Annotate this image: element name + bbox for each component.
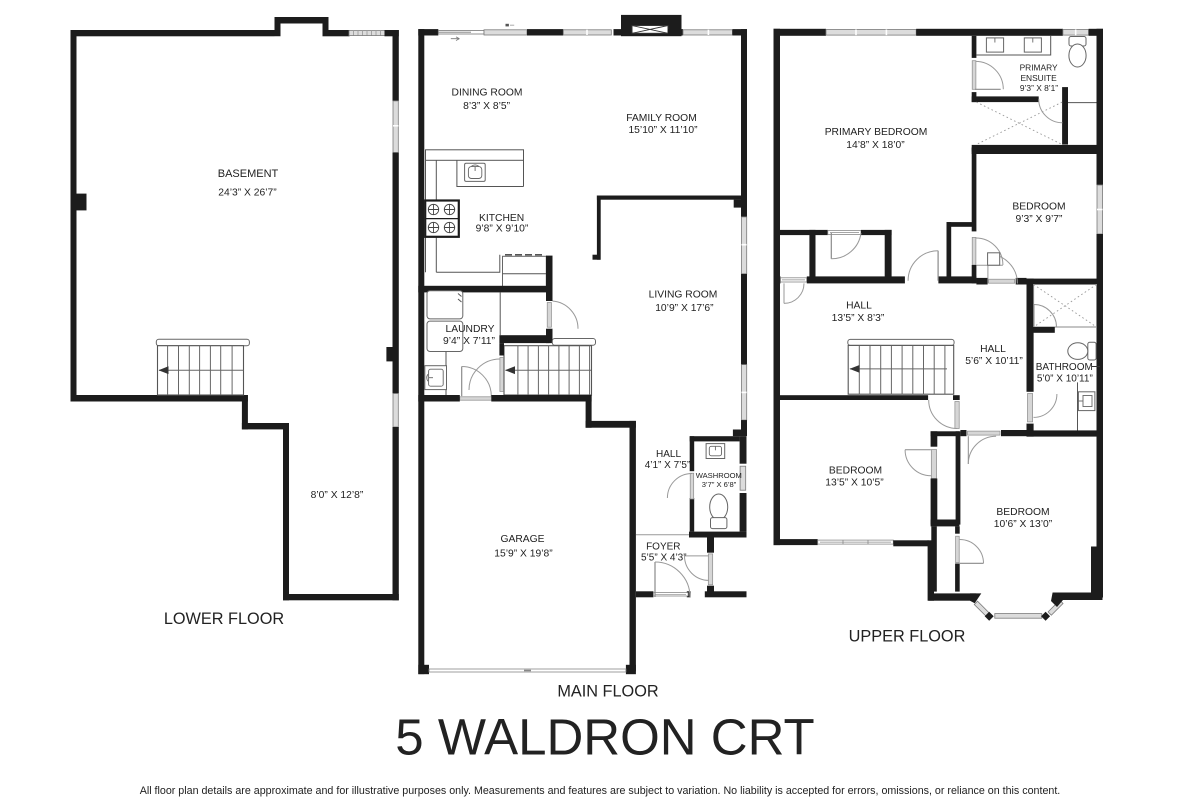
svg-text:5’0” X 10’11”: 5’0” X 10’11” — [1037, 373, 1093, 384]
svg-text:HALL: HALL — [656, 449, 681, 460]
svg-text:BEDROOM: BEDROOM — [1012, 202, 1065, 213]
svg-text:14’8” X 18’0”: 14’8” X 18’0” — [846, 140, 905, 151]
svg-text:10’9” X 17’6”: 10’9” X 17’6” — [655, 303, 714, 314]
svg-text:10’6” X 13’0”: 10’6” X 13’0” — [994, 519, 1053, 530]
svg-text:DINING ROOM: DINING ROOM — [452, 88, 523, 99]
svg-text:8’0” X 12’8”: 8’0” X 12’8” — [311, 490, 364, 501]
svg-text:4’1” X 7’5”: 4’1” X 7’5” — [645, 460, 691, 471]
svg-text:9’4” X 7’11”: 9’4” X 7’11” — [443, 336, 495, 347]
svg-text:LAUNDRY: LAUNDRY — [445, 324, 494, 335]
svg-text:9’3” X 9’7”: 9’3” X 9’7” — [1016, 214, 1064, 225]
svg-text:All floor plan details are app: All floor plan details are approximate a… — [140, 785, 1061, 797]
svg-text:FOYER: FOYER — [646, 542, 680, 553]
svg-text:UPPER FLOOR: UPPER FLOOR — [849, 628, 966, 646]
svg-text:ENSUITE: ENSUITE — [1020, 73, 1057, 83]
svg-text:13’5” X 10’5”: 13’5” X 10’5” — [825, 478, 884, 489]
svg-text:13’5” X 8’3”: 13’5” X 8’3” — [832, 313, 885, 324]
svg-text:BEDROOM: BEDROOM — [829, 466, 882, 477]
svg-text:PRIMARY: PRIMARY — [1020, 62, 1058, 72]
svg-text:8’3” X 8’5”: 8’3” X 8’5” — [463, 101, 511, 112]
svg-text:15’10” X 11’10”: 15’10” X 11’10” — [628, 125, 698, 136]
svg-text:PRIMARY BEDROOM: PRIMARY BEDROOM — [825, 127, 928, 138]
svg-text:BATHROOM: BATHROOM — [1036, 362, 1093, 373]
svg-text:LOWER FLOOR: LOWER FLOOR — [164, 610, 284, 628]
svg-text:24’3” X 26’7”: 24’3” X 26’7” — [218, 188, 277, 199]
svg-text:5 WALDRON CRT: 5 WALDRON CRT — [395, 709, 814, 766]
svg-text:15’9” X 19’8”: 15’9” X 19’8” — [494, 549, 553, 560]
svg-text:BEDROOM: BEDROOM — [996, 507, 1049, 518]
svg-text:3’7” X 6’8”: 3’7” X 6’8” — [702, 480, 737, 489]
svg-text:BASEMENT: BASEMENT — [218, 168, 279, 180]
svg-text:HALL: HALL — [980, 344, 1006, 355]
svg-text:LIVING ROOM: LIVING ROOM — [649, 289, 718, 300]
svg-text:MAIN FLOOR: MAIN FLOOR — [557, 683, 658, 701]
svg-text:5’5” X 4’3”: 5’5” X 4’3” — [641, 553, 687, 564]
svg-text:9’8” X 9’10”: 9’8” X 9’10” — [476, 224, 529, 235]
svg-text:HALL: HALL — [846, 301, 872, 312]
svg-text:WASHROOM: WASHROOM — [696, 471, 742, 480]
svg-text:9’3” X 8’1”: 9’3” X 8’1” — [1020, 83, 1058, 93]
svg-text:5’6” X 10’11”: 5’6” X 10’11” — [965, 356, 1023, 367]
svg-text:FAMILY ROOM: FAMILY ROOM — [626, 113, 697, 124]
svg-text:GARAGE: GARAGE — [500, 534, 544, 545]
